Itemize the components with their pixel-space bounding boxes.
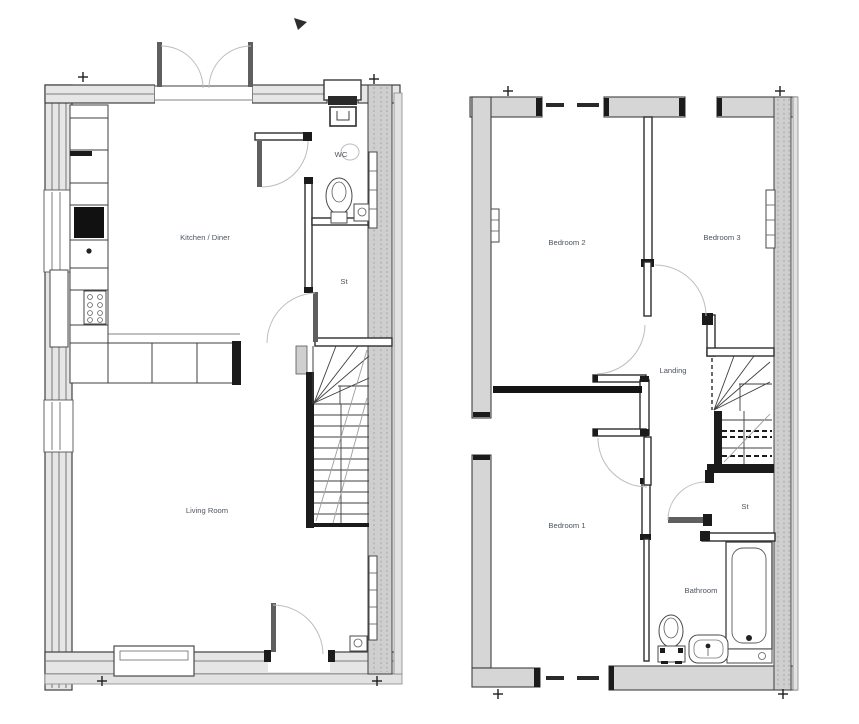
external-wall-top-ff <box>470 97 797 117</box>
wall-hall-stub <box>255 133 310 140</box>
bathtub-symbol <box>726 542 772 663</box>
chimney-breast <box>50 270 68 347</box>
wall-bathroom-north <box>700 531 775 541</box>
radiator-living <box>369 556 377 640</box>
room-label-bedroom3: Bedroom 3 <box>703 233 740 242</box>
party-wall-ff <box>774 97 798 690</box>
external-wall-bottom <box>45 652 402 684</box>
wall-bedroom1-east <box>640 478 651 661</box>
external-wall-left <box>45 85 72 690</box>
window-kitchen-left <box>44 190 73 272</box>
wall-bedroom2-bedroom3 <box>641 117 654 267</box>
staircase-first-floor <box>705 356 774 483</box>
door-jamb <box>304 177 313 184</box>
door-bedroom2 <box>597 325 645 374</box>
sink-symbol <box>86 248 91 253</box>
meter-box <box>350 636 367 651</box>
kitchen-counter-left <box>70 105 108 350</box>
door-jamb <box>303 132 312 141</box>
room-label-living-room: Living Room <box>186 506 228 515</box>
room-label-store-ff: St <box>741 502 749 511</box>
floorplan-canvas: Kitchen / Diner WC St Living Room <box>0 0 859 724</box>
staircase-ground <box>296 346 369 528</box>
wall-bedroom1-bedroom2 <box>493 386 642 393</box>
utility-box-wc <box>354 204 370 221</box>
cursor-icon <box>294 18 307 30</box>
entrance-canopy <box>324 80 361 126</box>
window-living-left <box>44 400 73 452</box>
door-wc <box>257 141 308 187</box>
radiator-bedroom2 <box>491 209 499 242</box>
door-bedroom3 <box>644 262 706 316</box>
radiator-wc <box>369 152 377 228</box>
ground-floor-plan: Kitchen / Diner WC St Living Room <box>44 42 402 690</box>
door-jamb <box>304 287 313 293</box>
door-rear <box>264 603 335 672</box>
oven-symbol <box>74 207 104 238</box>
french-doors <box>155 42 253 105</box>
wall-wc-west <box>305 183 312 292</box>
external-wall-left-ff <box>472 97 491 668</box>
wall-store-south <box>315 338 392 346</box>
room-label-bedroom2: Bedroom 2 <box>548 238 585 247</box>
room-label-bathroom: Bathroom <box>685 586 718 595</box>
toilet-symbol-bathroom <box>658 615 685 664</box>
wall-landing-west <box>593 375 649 436</box>
room-label-kitchen-diner: Kitchen / Diner <box>180 233 230 242</box>
external-wall-bottom-ff <box>472 666 797 690</box>
room-label-store-ground: St <box>340 277 348 286</box>
door-store-ground <box>267 292 318 343</box>
sink-symbol <box>689 635 728 663</box>
wall-stair-bedroom3 <box>702 313 774 356</box>
room-label-wc: WC <box>335 150 348 159</box>
door-bathroom <box>668 482 712 526</box>
window-living-bottom <box>114 646 194 676</box>
first-floor-plan: Bedroom 2 Bedroom 3 Landing Bedroom 1 St… <box>470 86 798 699</box>
room-label-landing: Landing <box>659 366 686 375</box>
room-label-bedroom1: Bedroom 1 <box>548 521 585 530</box>
toilet-symbol-wc <box>326 178 352 223</box>
floorplan-drawing: Kitchen / Diner WC St Living Room <box>0 0 859 724</box>
radiator-bedroom3 <box>766 190 775 248</box>
